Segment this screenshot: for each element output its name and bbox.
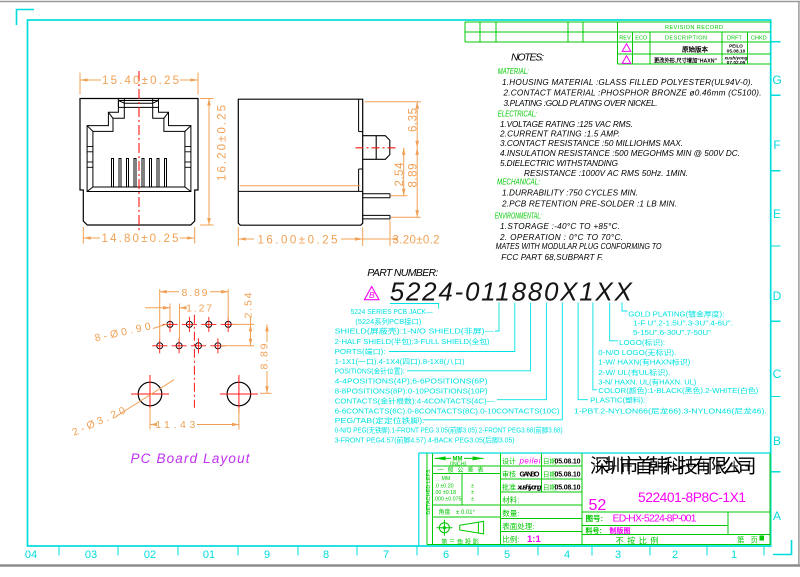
svg-text:05.08.10: 05.08.10 — [555, 471, 581, 478]
svg-text:±: ± — [471, 497, 474, 503]
svg-text:522401-8P8C-1X1: 522401-8P8C-1X1 — [638, 490, 746, 505]
svg-text:3-FRONT PEG4.57(前脚4.57).4-BACK: 3-FRONT PEG4.57(前脚4.57).4-BACK PEG3.05(后… — [335, 435, 515, 444]
svg-text:原始版本: 原始版本 — [682, 45, 709, 54]
svg-text:CHKD: CHKD — [751, 35, 767, 41]
svg-text:ENVIRONMENTAL:: ENVIRONMENTAL: — [495, 210, 542, 220]
svg-text:7: 7 — [383, 549, 389, 561]
svg-text:±: ± — [471, 484, 474, 490]
svg-text:5.DIELECTRIC WITHSTANDING: 5.DIELECTRIC WITHSTANDING — [500, 159, 619, 168]
svg-text:数量:: 数量: — [502, 508, 519, 518]
svg-text:ECO: ECO — [635, 35, 648, 41]
svg-text:6-6CONTACTS(6C).0-8CONTACTS(8C: 6-6CONTACTS(6C).0-8CONTACTS(8C).0-10CONT… — [335, 408, 560, 415]
svg-text:peilei: peilei — [519, 456, 541, 465]
svg-text:1:1: 1:1 — [527, 534, 541, 545]
svg-text:6: 6 — [443, 549, 449, 561]
svg-text:料号:: 料号: — [586, 526, 602, 535]
svg-text:ED-HX-5224-8P-001: ED-HX-5224-8P-001 — [613, 513, 697, 525]
svg-text:设计: 设计 — [502, 456, 516, 465]
svg-text:D: D — [773, 289, 782, 303]
svg-text:页: 页 — [751, 536, 758, 545]
svg-text:16.00±0.25: 16.00±0.25 — [258, 234, 338, 246]
svg-text:第: 第 — [737, 536, 744, 545]
svg-text:1-F U".2-1.5U".3-3U".4-6U".: 1-F U".2-1.5U".3-3U".4-6U". — [633, 321, 733, 328]
svg-text:15.40±0.25: 15.40±0.25 — [102, 75, 179, 87]
svg-text:.00 ±0.18: .00 ±0.18 — [434, 490, 456, 496]
svg-text:8-8POSITIONS(8P):0-10POSITIONS: 8-8POSITIONS(8P):0-10POSITIONS(10P) — [335, 388, 488, 395]
svg-text:角度: 角度 — [439, 508, 451, 516]
svg-text:1.VOLTAGE RATING :125 VAC RMS.: 1.VOLTAGE RATING :125 VAC RMS. — [500, 120, 633, 129]
svg-text:±: ± — [471, 490, 474, 496]
svg-text:制版图: 制版图 — [610, 526, 631, 535]
svg-text:2.PCB RETENTION PRE-SOLDER :1: 2.PCB RETENTION PRE-SOLDER :1 LB MIN. — [501, 200, 677, 209]
svg-text:1.27: 1.27 — [186, 303, 212, 315]
svg-text:2.54: 2.54 — [243, 292, 255, 318]
svg-text:9: 9 — [264, 549, 270, 561]
svg-text:RESISTANCE :1000V AC RMS 50Hz.: RESISTANCE :1000V AC RMS 50Hz. 1MIN. — [524, 169, 688, 178]
svg-text:03: 03 — [85, 549, 97, 561]
svg-text:3.20±0.2: 3.20±0.2 — [393, 234, 440, 246]
svg-text:GANBO: GANBO — [520, 471, 541, 478]
svg-text:更改外形.尺寸增加"HAXN": 更改外形.尺寸增加"HAXN" — [654, 57, 717, 65]
svg-text:3-N/ HAXN. UL(有HAXN. UL): 3-N/ HAXN. UL(有HAXN. UL) — [598, 378, 696, 387]
svg-text:2.54: 2.54 — [394, 162, 406, 187]
svg-text:05.08.10: 05.08.10 — [555, 458, 581, 465]
svg-text:6.35: 6.35 — [407, 108, 419, 132]
svg-text:MATES WITH MODULAR PLUG CONFOR: MATES WITH MODULAR PLUG CONFORMING TO — [496, 242, 663, 251]
svg-text:LOGO(标识):: LOGO(标识): — [619, 338, 665, 347]
svg-text:PLASTIC(塑料):: PLASTIC(塑料): — [590, 396, 645, 405]
svg-text:MATERIAL:: MATERIAL: — [498, 66, 529, 76]
svg-text:3.CONTACT RESISTANCE :50 MILLI: 3.CONTACT RESISTANCE :50 MILLIOHMS MAX. — [500, 139, 683, 148]
svg-text:SHIELD(屏蔽壳):1-N/O SHIELD(非屏)—: SHIELD(屏蔽壳):1-N/O SHIELD(非屏)— — [335, 327, 494, 336]
svg-text:B: B — [773, 434, 781, 448]
svg-text:MECHANICAL:: MECHANICAL: — [497, 177, 540, 187]
svg-text:E: E — [773, 207, 781, 221]
svg-text:PC Board Layout: PC Board Layout — [131, 451, 251, 466]
svg-text:52: 52 — [589, 497, 607, 514]
svg-text:16.20±0.25: 16.20±0.25 — [217, 105, 229, 181]
svg-text:DETACHED LEFS: DETACHED LEFS — [426, 469, 432, 514]
svg-text:B: B — [369, 290, 375, 300]
svg-text:GOLD PLATING(镀金厚度):: GOLD PLATING(镀金厚度): — [628, 309, 724, 318]
svg-text:A: A — [773, 509, 781, 523]
svg-text:04: 04 — [25, 549, 37, 561]
svg-text:14.80±0.25: 14.80±0.25 — [102, 233, 179, 245]
svg-text:批准: 批准 — [502, 483, 516, 492]
svg-text:8.89: 8.89 — [182, 287, 208, 299]
svg-text:C: C — [773, 367, 782, 381]
svg-text:4.INSULATION RESISTANCE :500 M: 4.INSULATION RESISTANCE :500 MEGOHMS MIN… — [500, 149, 740, 158]
svg-text:表面处理:: 表面处理: — [502, 521, 534, 531]
svg-text:COLOR(颜色):1-BLACK(黑色).2-WHITE(: COLOR(颜色):1-BLACK(黑色).2-WHITE(白色) — [598, 386, 758, 395]
svg-text:8-Ø0.90: 8-Ø0.90 — [94, 320, 152, 344]
svg-text:4-4POSITIONS(4P);6-6POSITIONS(: 4-4POSITIONS(4P);6-6POSITIONS(6P) — [335, 379, 488, 386]
svg-text:FCC PART 68,SUBPART F.: FCC PART 68,SUBPART F. — [501, 253, 603, 262]
svg-text:一般公差表: 一般公差表 — [438, 466, 484, 474]
svg-text:5-15U".6-30U".7-50U": 5-15U".6-30U".7-50U" — [633, 330, 712, 337]
svg-text:3.PLATING :GOLD PLATING OVER N: 3.PLATING :GOLD PLATING OVER NICKEL. — [504, 99, 658, 108]
svg-text:5224-011880X1XX: 5224-011880X1XX — [390, 277, 634, 307]
svg-text:1.HOUSING MATERIAL :GLASS FILL: 1.HOUSING MATERIAL :GLASS FILLED POLYEST… — [502, 78, 753, 87]
svg-text:G: G — [772, 73, 781, 87]
svg-text:.000 ±0.075: .000 ±0.075 — [434, 497, 462, 503]
svg-text:1.STORAGE :-40°C TO +85°C.: 1.STORAGE :-40°C TO +85°C. — [500, 222, 620, 231]
svg-text:MM: MM — [442, 476, 451, 482]
svg-text:比例:: 比例: — [502, 534, 519, 544]
svg-text:4: 4 — [564, 549, 570, 561]
svg-text:xushiyong: xushiyong — [724, 55, 748, 60]
svg-text:图号:: 图号: — [586, 514, 604, 523]
svg-text:NOTES:: NOTES: — [511, 52, 544, 64]
svg-text:± 0.01°: ± 0.01° — [456, 510, 476, 516]
svg-text:02: 02 — [144, 549, 156, 561]
svg-text:REVISION RECORD: REVISION RECORD — [665, 25, 723, 31]
svg-text:(5224系列PCB接口): (5224系列PCB接口) — [355, 317, 421, 326]
svg-text:DESCRIPTION: DESCRIPTION — [665, 35, 707, 41]
svg-text:8.89: 8.89 — [407, 164, 419, 188]
svg-text:2.CONTACT MATERIAL :PHOSPHOR B: 2.CONTACT MATERIAL :PHOSPHOR BRONZE ø0.4… — [503, 89, 762, 98]
svg-text:PEG/TAB(定定位铁脚):: PEG/TAB(定定位铁脚): — [335, 416, 425, 425]
svg-text:05.08.10: 05.08.10 — [727, 49, 746, 55]
svg-text:2-HALF SHIELD(半包);3-FULL SHIEL: 2-HALF SHIELD(半包);3-FULL SHIELD(全包) — [335, 337, 490, 346]
svg-text:第三角投影: 第三角投影 — [441, 537, 480, 546]
svg-text:8.89: 8.89 — [259, 343, 271, 369]
svg-text:0-N/O LOGO(无标识).: 0-N/O LOGO(无标识). — [598, 348, 676, 357]
svg-text:5: 5 — [504, 549, 510, 561]
svg-text:2: 2 — [672, 549, 678, 561]
svg-text:ELECTRICAL:: ELECTRICAL: — [498, 109, 537, 118]
svg-text:材料:: 材料: — [502, 495, 519, 505]
svg-text:2.CURRENT RATING :1.5 AMP.: 2.CURRENT RATING :1.5 AMP. — [499, 130, 620, 139]
svg-text:1-PBT.2-NYLON66(尼龙66).3-NYLON4: 1-PBT.2-NYLON66(尼龙66).3-NYLON46(尼龙46). — [574, 406, 767, 415]
svg-text:0-N/O PEG(无铁脚).1-FRONT PEG 3.0: 0-N/O PEG(无铁脚).1-FRONT PEG 3.05(前脚3.05).… — [335, 425, 563, 434]
svg-text:01: 01 — [203, 549, 215, 561]
svg-text:1.DURRABILITY :750 CYCLES MIN.: 1.DURRABILITY :750 CYCLES MIN. — [502, 189, 638, 198]
svg-text:5224 SERIES PCB JACK—: 5224 SERIES PCB JACK— — [351, 309, 433, 316]
svg-text:1-1X1(一口).4-1X4(四口).8-1X8(八口): 1-1X1(一口).4-1X4(四口).8-1X8(八口) — [335, 358, 465, 366]
svg-text:2-Ø3.20: 2-Ø3.20 — [70, 405, 127, 439]
svg-text:POSITIONS(金针位置):: POSITIONS(金针位置): — [335, 366, 405, 375]
svg-text:1-W/ HAXN(有HAXN标识): 1-W/ HAXN(有HAXN标识) — [598, 358, 690, 367]
svg-text:1: 1 — [731, 549, 737, 561]
svg-text:审核: 审核 — [502, 469, 516, 478]
svg-text:CONTACTS(金针根数):4-4CONTACTS(4C): CONTACTS(金针根数):4-4CONTACTS(4C)— — [335, 397, 495, 406]
svg-text:2. OPERATION : 0°C TO 70°C.: 2. OPERATION : 0°C TO 70°C. — [499, 233, 623, 242]
svg-text:8: 8 — [323, 549, 329, 561]
svg-text:05.08.10: 05.08.10 — [555, 485, 581, 492]
svg-text:3: 3 — [615, 549, 621, 561]
svg-text:REV: REV — [619, 35, 631, 41]
svg-text:F: F — [773, 138, 780, 152]
svg-text:PORTS(端口):: PORTS(端口): — [335, 347, 386, 356]
svg-text:DRFT: DRFT — [727, 35, 742, 41]
svg-text:xushiyong: xushiyong — [517, 485, 543, 492]
svg-text:2-W/ UL(有UL标识).: 2-W/ UL(有UL标识). — [598, 368, 670, 377]
svg-text:.0 ±0.20: .0 ±0.20 — [435, 484, 454, 490]
svg-text:PEILO: PEILO — [729, 44, 743, 49]
svg-text:11.43: 11.43 — [155, 419, 195, 431]
svg-text:07.02.05: 07.02.05 — [727, 60, 746, 66]
svg-text:不按比例: 不按比例 — [616, 535, 659, 545]
